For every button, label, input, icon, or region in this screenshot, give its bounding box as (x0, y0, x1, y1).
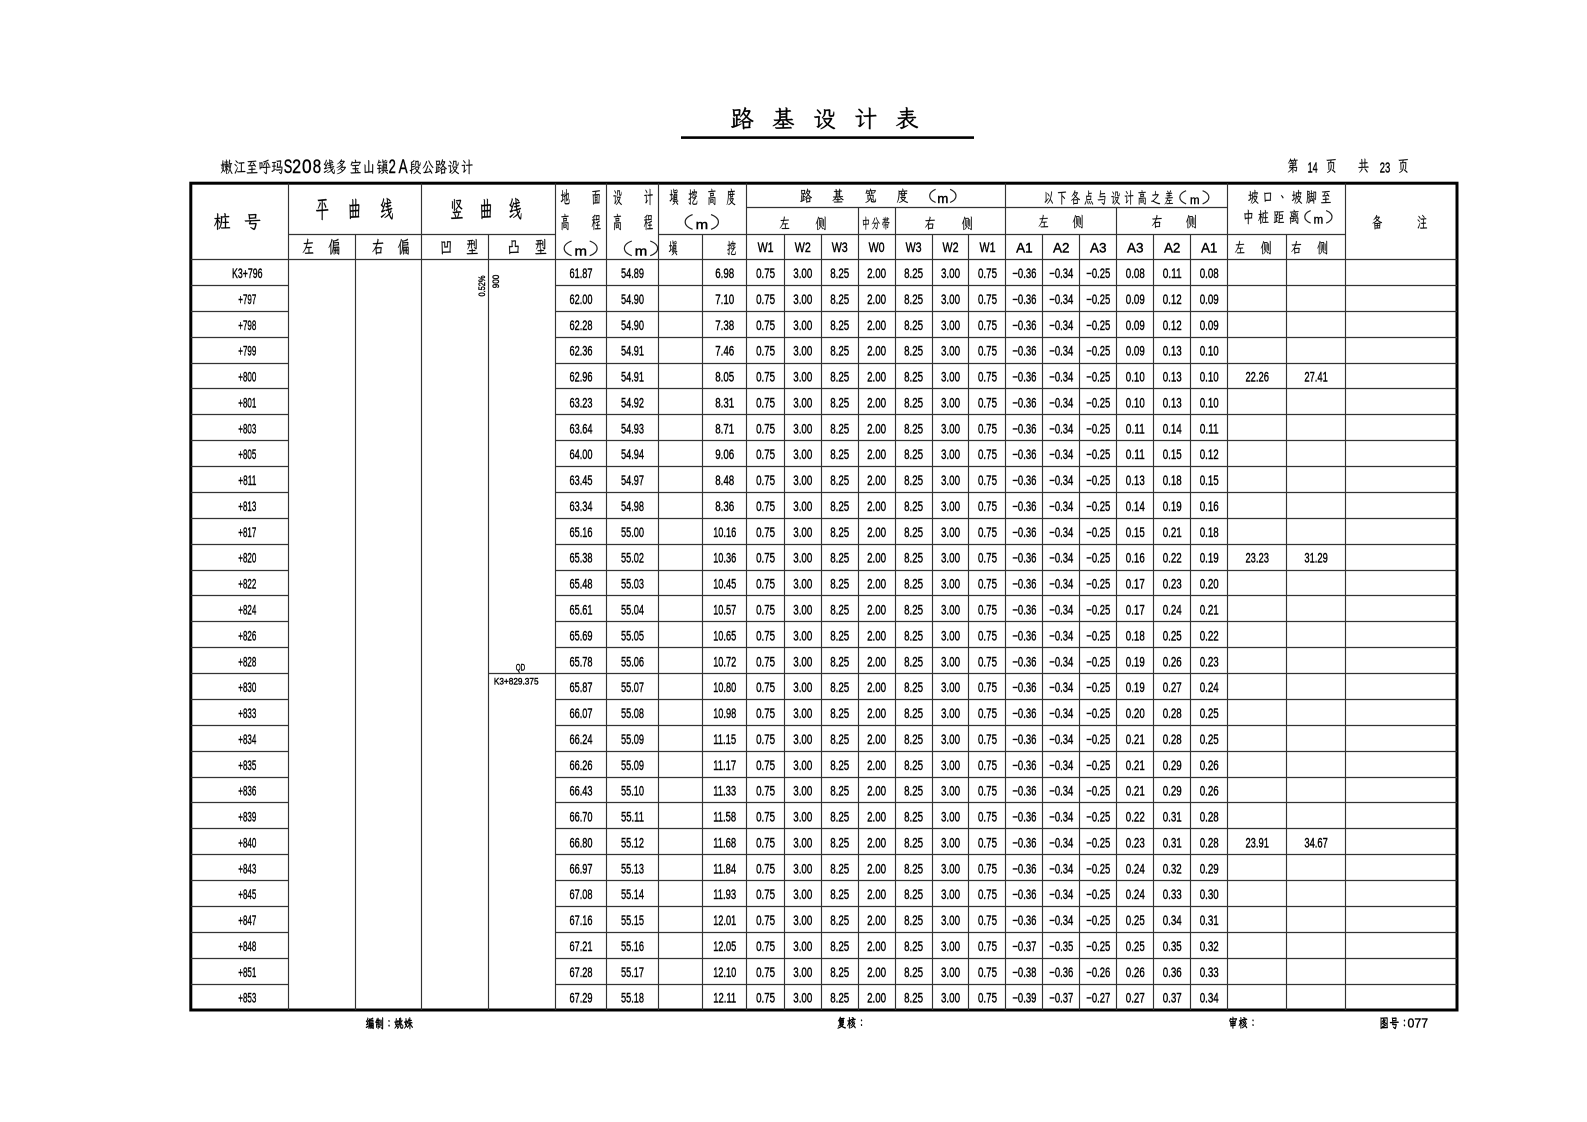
svg-text:0.35: 0.35 (1163, 939, 1182, 954)
svg-text:−0.34: −0.34 (1049, 861, 1073, 876)
svg-text:55.05: 55.05 (621, 628, 644, 643)
svg-text:−0.34: −0.34 (1049, 784, 1073, 799)
svg-text:0.75: 0.75 (978, 473, 997, 488)
svg-text:8.25: 8.25 (904, 344, 923, 359)
svg-text:3.00: 3.00 (941, 939, 960, 954)
svg-text:2.00: 2.00 (867, 266, 886, 281)
svg-text:0.24: 0.24 (1200, 680, 1219, 695)
svg-text:0.37: 0.37 (1163, 991, 1182, 1006)
svg-text:+834: +834 (238, 732, 256, 747)
svg-text:3.00: 3.00 (793, 861, 812, 876)
svg-text:0.75: 0.75 (756, 965, 775, 980)
svg-text:31.29: 31.29 (1304, 551, 1328, 566)
svg-text:3.00: 3.00 (793, 965, 812, 980)
svg-text:3.00: 3.00 (793, 577, 812, 592)
svg-text:0.22: 0.22 (1163, 551, 1182, 566)
svg-text:0.75: 0.75 (978, 861, 997, 876)
svg-text:W1: W1 (758, 239, 774, 255)
svg-text:−0.34: −0.34 (1049, 628, 1073, 643)
svg-text:0.75: 0.75 (978, 991, 997, 1006)
svg-text:3.00: 3.00 (941, 913, 960, 928)
svg-text:+798: +798 (238, 318, 256, 333)
svg-text:8.25: 8.25 (830, 370, 849, 385)
svg-text:2.00: 2.00 (867, 991, 886, 1006)
svg-text:0.75: 0.75 (756, 370, 775, 385)
svg-text:A: A (399, 157, 408, 178)
svg-text:2: 2 (389, 157, 396, 178)
svg-text:67.29: 67.29 (570, 991, 593, 1006)
svg-text:−0.25: −0.25 (1086, 784, 1110, 799)
svg-text:66.70: 66.70 (570, 810, 593, 825)
svg-text:2.00: 2.00 (867, 396, 886, 411)
svg-text:−0.36: −0.36 (1012, 421, 1036, 436)
svg-text:K3+829.375: K3+829.375 (494, 677, 539, 688)
svg-text:55.06: 55.06 (621, 654, 644, 669)
svg-text:A1: A1 (1016, 240, 1033, 256)
svg-text:+830: +830 (238, 680, 256, 695)
svg-text:54.93: 54.93 (621, 421, 644, 436)
svg-text:−0.36: −0.36 (1012, 499, 1036, 514)
svg-text:m: m (635, 244, 648, 259)
svg-text:8: 8 (313, 157, 321, 178)
svg-text:55.11: 55.11 (621, 810, 644, 825)
svg-text:8.25: 8.25 (904, 525, 923, 540)
svg-text:−0.34: −0.34 (1049, 913, 1073, 928)
svg-text:+799: +799 (238, 344, 256, 359)
svg-text:2.00: 2.00 (867, 939, 886, 954)
svg-text:0.09: 0.09 (1126, 344, 1145, 359)
svg-text:66.43: 66.43 (570, 784, 593, 799)
svg-text:3.00: 3.00 (941, 654, 960, 669)
svg-text:0.23: 0.23 (1200, 654, 1219, 669)
svg-text:−0.25: −0.25 (1086, 887, 1110, 902)
svg-text:0.75: 0.75 (756, 396, 775, 411)
svg-text:−0.36: −0.36 (1012, 680, 1036, 695)
svg-text:7.38: 7.38 (715, 318, 734, 333)
svg-text:66.24: 66.24 (570, 732, 593, 747)
svg-text:+826: +826 (238, 628, 256, 643)
svg-text:0.13: 0.13 (1126, 473, 1145, 488)
svg-text:0.75: 0.75 (756, 861, 775, 876)
svg-text:3.00: 3.00 (941, 499, 960, 514)
svg-text:22.26: 22.26 (1245, 370, 1269, 385)
svg-text:3.00: 3.00 (793, 913, 812, 928)
svg-text:3.00: 3.00 (793, 784, 812, 799)
svg-text:K3+796: K3+796 (232, 266, 263, 281)
svg-text:0.08: 0.08 (1126, 266, 1145, 281)
svg-text:65.78: 65.78 (570, 654, 593, 669)
svg-text:0.26: 0.26 (1200, 784, 1219, 799)
svg-text:8.25: 8.25 (830, 654, 849, 669)
svg-text:2.00: 2.00 (867, 421, 886, 436)
svg-text:2.00: 2.00 (867, 473, 886, 488)
svg-text:8.25: 8.25 (904, 835, 923, 850)
svg-text:55.10: 55.10 (621, 784, 644, 799)
svg-text:0.19: 0.19 (1163, 499, 1182, 514)
svg-text:0.75: 0.75 (756, 292, 775, 307)
svg-text:−0.34: −0.34 (1049, 654, 1073, 669)
svg-text:0.75: 0.75 (978, 396, 997, 411)
svg-text:8.25: 8.25 (904, 551, 923, 566)
svg-text:0.21: 0.21 (1163, 525, 1182, 540)
svg-text:54.90: 54.90 (621, 292, 644, 307)
svg-text:W3: W3 (906, 239, 922, 255)
svg-text:0.75: 0.75 (978, 758, 997, 773)
svg-text:8.25: 8.25 (904, 266, 923, 281)
svg-text:0.25: 0.25 (1200, 706, 1219, 721)
svg-text:0.75: 0.75 (978, 965, 997, 980)
svg-text:0.32: 0.32 (1200, 939, 1219, 954)
svg-text:3.00: 3.00 (793, 810, 812, 825)
svg-text:−0.25: −0.25 (1086, 758, 1110, 773)
svg-text:63.45: 63.45 (570, 473, 593, 488)
svg-text:3.00: 3.00 (793, 370, 812, 385)
svg-text:−0.36: −0.36 (1012, 654, 1036, 669)
svg-text:m: m (937, 191, 948, 206)
svg-text:3.00: 3.00 (793, 758, 812, 773)
svg-text:2.00: 2.00 (867, 810, 886, 825)
svg-text:−0.36: −0.36 (1012, 447, 1036, 462)
svg-text:2.00: 2.00 (867, 499, 886, 514)
svg-text:0.75: 0.75 (978, 292, 997, 307)
svg-text:0.13: 0.13 (1163, 344, 1182, 359)
svg-text:0.24: 0.24 (1126, 887, 1145, 902)
svg-text:−0.35: −0.35 (1049, 939, 1073, 954)
svg-text:3.00: 3.00 (941, 991, 960, 1006)
svg-text:0.75: 0.75 (978, 603, 997, 618)
svg-text:0.09: 0.09 (1126, 292, 1145, 307)
svg-text:+833: +833 (238, 706, 256, 721)
svg-text:8.25: 8.25 (830, 551, 849, 566)
svg-text:0.75: 0.75 (978, 680, 997, 695)
svg-text:8.25: 8.25 (830, 292, 849, 307)
svg-text:−0.34: −0.34 (1049, 318, 1073, 333)
svg-text:0.20: 0.20 (1126, 706, 1145, 721)
svg-text:0.16: 0.16 (1200, 499, 1219, 514)
svg-text:−0.34: −0.34 (1049, 396, 1073, 411)
svg-text:55.02: 55.02 (621, 551, 644, 566)
svg-text:8.25: 8.25 (830, 861, 849, 876)
svg-text:−0.36: −0.36 (1012, 758, 1036, 773)
svg-text:8.25: 8.25 (904, 861, 923, 876)
svg-text:0.18: 0.18 (1126, 628, 1145, 643)
svg-text:12.11: 12.11 (713, 991, 736, 1006)
svg-text:−0.36: −0.36 (1012, 292, 1036, 307)
svg-text:3.00: 3.00 (793, 628, 812, 643)
svg-text:2.00: 2.00 (867, 654, 886, 669)
svg-text:−0.25: −0.25 (1086, 370, 1110, 385)
svg-text:0.10: 0.10 (1200, 344, 1219, 359)
svg-text:3.00: 3.00 (941, 370, 960, 385)
svg-text:55.17: 55.17 (621, 965, 644, 980)
svg-text:−0.36: −0.36 (1012, 784, 1036, 799)
svg-text:8.25: 8.25 (904, 758, 923, 773)
svg-text:0.75: 0.75 (756, 525, 775, 540)
svg-text:0.29: 0.29 (1200, 861, 1219, 876)
svg-text:8.25: 8.25 (904, 370, 923, 385)
svg-text:8.25: 8.25 (830, 939, 849, 954)
svg-text:8.25: 8.25 (830, 732, 849, 747)
svg-text:11.68: 11.68 (713, 835, 736, 850)
svg-text:65.16: 65.16 (570, 525, 593, 540)
svg-text:2.00: 2.00 (867, 965, 886, 980)
svg-text:−0.25: −0.25 (1086, 680, 1110, 695)
svg-text:8.31: 8.31 (715, 396, 734, 411)
svg-text:+848: +848 (238, 939, 256, 954)
svg-text:−0.36: −0.36 (1012, 396, 1036, 411)
svg-text:8.25: 8.25 (830, 447, 849, 462)
svg-text:23.23: 23.23 (1245, 551, 1269, 566)
svg-text:0.17: 0.17 (1126, 603, 1145, 618)
svg-text:55.07: 55.07 (621, 680, 644, 695)
svg-text:27.41: 27.41 (1304, 370, 1328, 385)
svg-text:0.26: 0.26 (1126, 965, 1145, 980)
svg-text:0.75: 0.75 (756, 939, 775, 954)
svg-text:3.00: 3.00 (941, 292, 960, 307)
svg-text:65.61: 65.61 (570, 603, 593, 618)
svg-text:0.75: 0.75 (756, 913, 775, 928)
svg-text:3.00: 3.00 (793, 680, 812, 695)
svg-text:−0.34: −0.34 (1049, 732, 1073, 747)
svg-text:0.75: 0.75 (756, 887, 775, 902)
svg-text:0.52%: 0.52% (477, 275, 488, 296)
svg-text:2.00: 2.00 (867, 835, 886, 850)
svg-text:0.13: 0.13 (1163, 370, 1182, 385)
svg-text:−0.37: −0.37 (1049, 991, 1073, 1006)
svg-text:−0.34: −0.34 (1049, 447, 1073, 462)
svg-text:0.34: 0.34 (1163, 913, 1182, 928)
svg-text:3.00: 3.00 (793, 318, 812, 333)
svg-text:+845: +845 (238, 887, 256, 902)
svg-text:3.00: 3.00 (941, 706, 960, 721)
svg-text:0.12: 0.12 (1200, 447, 1219, 462)
svg-text:−0.34: −0.34 (1049, 758, 1073, 773)
svg-text:−0.34: −0.34 (1049, 370, 1073, 385)
svg-text:0.10: 0.10 (1126, 396, 1145, 411)
svg-text:8.25: 8.25 (904, 292, 923, 307)
svg-text:0.15: 0.15 (1200, 473, 1219, 488)
svg-text:3.00: 3.00 (793, 473, 812, 488)
svg-text:0.12: 0.12 (1163, 318, 1182, 333)
svg-text:+853: +853 (238, 991, 256, 1006)
svg-text:−0.36: −0.36 (1049, 965, 1073, 980)
svg-text:7.10: 7.10 (715, 292, 734, 307)
svg-text:3.00: 3.00 (941, 784, 960, 799)
svg-text:−0.25: −0.25 (1086, 421, 1110, 436)
svg-text:3.00: 3.00 (793, 266, 812, 281)
svg-text:8.25: 8.25 (904, 577, 923, 592)
svg-text:−0.34: −0.34 (1049, 577, 1073, 592)
svg-text:66.80: 66.80 (570, 835, 593, 850)
svg-text:8.25: 8.25 (904, 396, 923, 411)
svg-text:−0.36: −0.36 (1012, 706, 1036, 721)
svg-text:0.13: 0.13 (1163, 396, 1182, 411)
svg-text:0.18: 0.18 (1200, 525, 1219, 540)
svg-text:−0.34: −0.34 (1049, 421, 1073, 436)
svg-text:0.75: 0.75 (978, 835, 997, 850)
svg-text:10.80: 10.80 (713, 680, 736, 695)
svg-text:0.75: 0.75 (978, 266, 997, 281)
svg-text:0.75: 0.75 (978, 577, 997, 592)
svg-text:23.91: 23.91 (1245, 835, 1269, 850)
svg-text:0.75: 0.75 (978, 628, 997, 643)
svg-text:−0.36: −0.36 (1012, 551, 1036, 566)
svg-text:3.00: 3.00 (941, 318, 960, 333)
svg-text:0.18: 0.18 (1163, 473, 1182, 488)
svg-text:8.25: 8.25 (904, 499, 923, 514)
svg-text:−0.36: −0.36 (1012, 577, 1036, 592)
svg-text:0.31: 0.31 (1163, 835, 1182, 850)
svg-text:0.21: 0.21 (1126, 758, 1145, 773)
svg-text:+805: +805 (238, 447, 256, 462)
svg-text:0.75: 0.75 (756, 447, 775, 462)
svg-text:0.75: 0.75 (756, 473, 775, 488)
svg-text:8.25: 8.25 (904, 887, 923, 902)
svg-text:0.75: 0.75 (756, 551, 775, 566)
svg-text:8.25: 8.25 (904, 784, 923, 799)
svg-text:0.30: 0.30 (1200, 887, 1219, 902)
svg-text:8.25: 8.25 (830, 784, 849, 799)
svg-text:8.25: 8.25 (830, 810, 849, 825)
svg-text:−0.25: −0.25 (1086, 861, 1110, 876)
svg-text:−0.36: −0.36 (1012, 318, 1036, 333)
svg-text:−0.25: −0.25 (1086, 473, 1110, 488)
svg-text:0.75: 0.75 (978, 706, 997, 721)
svg-text:0.75: 0.75 (978, 551, 997, 566)
svg-text:8.25: 8.25 (904, 680, 923, 695)
svg-text:0.10: 0.10 (1126, 370, 1145, 385)
svg-text:−0.25: −0.25 (1086, 603, 1110, 618)
svg-text:11.33: 11.33 (713, 784, 736, 799)
svg-text:−0.36: −0.36 (1012, 603, 1036, 618)
svg-text:−0.25: −0.25 (1086, 525, 1110, 540)
svg-text:0.23: 0.23 (1126, 835, 1145, 850)
svg-text:8.25: 8.25 (830, 628, 849, 643)
svg-text:−0.25: −0.25 (1086, 344, 1110, 359)
svg-text:3.00: 3.00 (941, 758, 960, 773)
svg-text:8.25: 8.25 (904, 991, 923, 1006)
svg-text:11.58: 11.58 (713, 810, 736, 825)
svg-text:0.29: 0.29 (1163, 758, 1182, 773)
svg-text:2.00: 2.00 (867, 551, 886, 566)
svg-text:8.25: 8.25 (830, 603, 849, 618)
svg-text:0.75: 0.75 (756, 758, 775, 773)
svg-text:0.25: 0.25 (1126, 913, 1145, 928)
svg-text:54.91: 54.91 (621, 344, 644, 359)
svg-text:0.28: 0.28 (1200, 810, 1219, 825)
svg-text:−0.25: −0.25 (1086, 939, 1110, 954)
svg-text:−0.36: −0.36 (1012, 887, 1036, 902)
svg-text:0.75: 0.75 (756, 732, 775, 747)
svg-text:−0.36: −0.36 (1012, 525, 1036, 540)
svg-text:8.25: 8.25 (904, 318, 923, 333)
svg-text:62.96: 62.96 (570, 370, 593, 385)
svg-text:2.00: 2.00 (867, 732, 886, 747)
svg-text:55.12: 55.12 (621, 835, 644, 850)
svg-text:0.25: 0.25 (1163, 628, 1182, 643)
svg-text:0.11: 0.11 (1200, 421, 1219, 436)
svg-text:34.67: 34.67 (1304, 835, 1328, 850)
svg-text:54.89: 54.89 (621, 266, 644, 281)
svg-text:0.33: 0.33 (1200, 965, 1219, 980)
svg-text:−0.36: −0.36 (1012, 473, 1036, 488)
svg-text:A2: A2 (1053, 240, 1070, 256)
svg-text:0.28: 0.28 (1200, 835, 1219, 850)
svg-text:0.24: 0.24 (1163, 603, 1182, 618)
svg-text:8.25: 8.25 (904, 965, 923, 980)
svg-text:0.25: 0.25 (1200, 732, 1219, 747)
svg-text:−0.34: −0.34 (1049, 680, 1073, 695)
svg-text:0.23: 0.23 (1163, 577, 1182, 592)
svg-text:0.19: 0.19 (1126, 654, 1145, 669)
svg-text:−0.38: −0.38 (1012, 965, 1036, 980)
svg-text:0.26: 0.26 (1163, 654, 1182, 669)
svg-text:8.25: 8.25 (904, 913, 923, 928)
svg-text:10.57: 10.57 (713, 603, 736, 618)
svg-text:+820: +820 (238, 551, 256, 566)
svg-text:3.00: 3.00 (941, 421, 960, 436)
svg-text:+822: +822 (238, 577, 256, 592)
svg-text:63.23: 63.23 (570, 396, 593, 411)
svg-text:8.25: 8.25 (904, 654, 923, 669)
svg-text:8.25: 8.25 (904, 732, 923, 747)
svg-text:8.71: 8.71 (715, 421, 734, 436)
svg-text:−0.25: −0.25 (1086, 499, 1110, 514)
svg-text:−0.25: −0.25 (1086, 628, 1110, 643)
svg-text:0.75: 0.75 (756, 344, 775, 359)
svg-text:m: m (1190, 193, 1200, 207)
svg-text:0.75: 0.75 (756, 266, 775, 281)
svg-text:0.33: 0.33 (1163, 887, 1182, 902)
svg-text:61.87: 61.87 (570, 266, 593, 281)
svg-text:8.25: 8.25 (830, 913, 849, 928)
svg-text:3.00: 3.00 (941, 344, 960, 359)
svg-text:62.00: 62.00 (570, 292, 593, 307)
svg-text:0.21: 0.21 (1126, 732, 1145, 747)
svg-text:55.04: 55.04 (621, 603, 644, 618)
svg-text:0.19: 0.19 (1126, 680, 1145, 695)
svg-text:55.00: 55.00 (621, 525, 644, 540)
svg-text:A1: A1 (1201, 240, 1218, 256)
svg-text:0.15: 0.15 (1163, 447, 1182, 462)
svg-text:7.46: 7.46 (715, 344, 734, 359)
svg-text:QD: QD (516, 663, 526, 673)
svg-text:54.91: 54.91 (621, 370, 644, 385)
svg-text:−0.36: −0.36 (1012, 835, 1036, 850)
svg-text:8.25: 8.25 (904, 706, 923, 721)
svg-text:W3: W3 (832, 239, 848, 255)
svg-text:−0.34: −0.34 (1049, 835, 1073, 850)
svg-text:11.15: 11.15 (713, 732, 736, 747)
svg-text:55.08: 55.08 (621, 706, 644, 721)
svg-text:−0.25: −0.25 (1086, 396, 1110, 411)
svg-text:65.69: 65.69 (570, 628, 593, 643)
svg-text:11.84: 11.84 (713, 861, 736, 876)
svg-text:+851: +851 (238, 965, 256, 980)
svg-text:−0.25: −0.25 (1086, 551, 1110, 566)
svg-text:+840: +840 (238, 835, 256, 850)
svg-text:8.25: 8.25 (830, 758, 849, 773)
svg-text:2.00: 2.00 (867, 344, 886, 359)
svg-text:2.00: 2.00 (867, 447, 886, 462)
svg-text:2.00: 2.00 (867, 292, 886, 307)
svg-text:54.98: 54.98 (621, 499, 644, 514)
svg-text:8.25: 8.25 (830, 525, 849, 540)
svg-text:3.00: 3.00 (793, 706, 812, 721)
svg-text:0.36: 0.36 (1163, 965, 1182, 980)
svg-text:−0.25: −0.25 (1086, 654, 1110, 669)
svg-text:3.00: 3.00 (941, 965, 960, 980)
